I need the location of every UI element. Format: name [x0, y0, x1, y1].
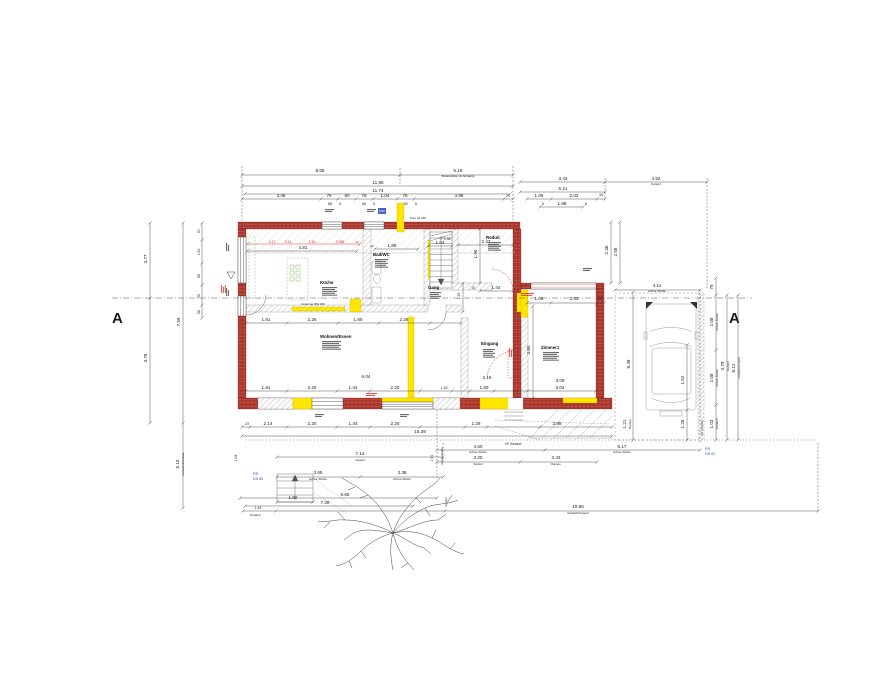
micro-text-line [221, 285, 222, 293]
dim-label: 6 [585, 202, 587, 206]
micro-text-line [228, 290, 229, 296]
dim-label: 7.59 [176, 317, 181, 326]
dim-label: Carport [726, 361, 730, 371]
ramp-hatch [528, 410, 612, 438]
micro-text-block [322, 287, 337, 296]
dim-label: 3.98 [455, 193, 464, 198]
dim-label: 15.39 [414, 429, 426, 434]
room-label-eingang: Eingang [481, 341, 499, 346]
dim-label: Sockel [473, 462, 482, 466]
dim-label: 2.03 [570, 193, 579, 198]
micro-text-block [322, 341, 341, 350]
micro-text-line [322, 287, 337, 288]
micro-text-line [430, 298, 439, 299]
dim-label: Achse Stütze [309, 477, 327, 481]
micro-text-line [483, 357, 495, 358]
micro-text-line [228, 245, 229, 251]
dim-label: 1.44 [492, 285, 501, 290]
dim-label: Vordach/Carport [737, 357, 741, 379]
dim-label: 1.62 [197, 249, 201, 256]
dim-label: 2.26 [400, 317, 409, 322]
dim-label: 3.65 [526, 345, 531, 354]
room-label-reduit: Reduit [486, 235, 500, 240]
micro-text-line [226, 288, 227, 296]
dim-label: 58 [197, 274, 201, 278]
micro-text-line [488, 246, 501, 247]
micro-text-line [543, 356, 559, 357]
dim-label: 3.89 [553, 421, 562, 426]
dim-label: 1.80 [354, 317, 363, 322]
micro-text-line [543, 354, 557, 355]
micro-text-line [400, 416, 407, 417]
dim-label: 1.40 [309, 240, 316, 244]
micro-text-line [325, 209, 334, 210]
drain-left-label-1: RR [253, 472, 259, 476]
dim-label: Knie eff.160 [410, 216, 426, 220]
dim-label: 92 [404, 202, 408, 206]
dim-label: 1.44 [349, 421, 358, 426]
micro-text-line [521, 293, 534, 294]
dim-label: 4.52 [652, 176, 661, 181]
micro-text-line [315, 414, 324, 415]
labels-layer: 8.655.19Bodenplatte vor Eingang11.9611.7… [143, 168, 741, 517]
dim-label: 6 [542, 202, 544, 206]
dim-label: 76 [326, 193, 332, 198]
micro-text-line [488, 242, 501, 243]
micro-text-line [483, 353, 495, 354]
micro-text-line [488, 244, 499, 245]
dim-label: 2.14 [285, 240, 292, 244]
dim-label: 3.43 [552, 455, 561, 460]
micro-text-line [483, 355, 493, 356]
micro-text-line [521, 295, 532, 296]
hob-icon [290, 265, 300, 281]
micro-text-line [430, 294, 439, 295]
dim-label: 1.81 [262, 317, 271, 322]
bottom-wall-hatch-1 [258, 398, 293, 409]
drain-right-label-2: DN 60 [705, 452, 715, 456]
dim-label: 2.20 [391, 421, 400, 426]
car-icon [644, 304, 698, 416]
dim-label: 1.03 [709, 419, 714, 428]
dim-label: 2.20 [308, 385, 317, 390]
micro-text-block [583, 268, 592, 271]
micro-text-block [325, 209, 334, 212]
micro-text-line [375, 265, 386, 266]
blue-marker-icon [378, 208, 386, 214]
dim-label: Achse Stütze [715, 369, 719, 387]
micro-text-line [375, 263, 388, 264]
dim-label: Bodenplatte vor Eingang [442, 174, 475, 178]
micro-text-line [322, 289, 335, 290]
micro-text-line [509, 348, 510, 357]
dim-label: 1.26 [680, 419, 685, 428]
micro-text-line [322, 343, 339, 344]
dim-label: 1.18 [441, 386, 448, 390]
dim-label: 5.21 [559, 186, 568, 191]
dim-label: 95 [197, 294, 201, 298]
micro-text-line [367, 211, 374, 212]
micro-text-line [543, 360, 559, 361]
micro-text-line [325, 211, 332, 212]
dim-label: 8.12 [731, 363, 736, 372]
dim-label: Vordach/Carport [567, 511, 589, 515]
micro-text-block [226, 288, 229, 296]
dim-label: 1.06 [535, 193, 544, 198]
room-label-wohnen-essen: Wohnen/Essen [320, 334, 352, 339]
dim-label: Unterzug IPE 200 [301, 302, 325, 306]
micro-text-line [583, 268, 592, 269]
dim-label: 2.14 [264, 421, 273, 426]
drain-left-label-2: DN 80 [253, 477, 263, 481]
dim-label: 1.91 [430, 455, 434, 462]
micro-text-line [366, 393, 377, 394]
micro-text-line [400, 414, 409, 415]
dim-label: 2.58 [613, 247, 618, 256]
dim-label: Achse Stütze [613, 450, 631, 454]
dim-label: 3.09 [556, 378, 565, 383]
micro-text-line [483, 351, 493, 352]
dim-label: VK Vordach [505, 442, 522, 446]
dim-label: 68 [328, 202, 332, 206]
dim-label: Vordach [249, 513, 260, 517]
dim-label: 3.38 [398, 470, 407, 475]
floor-plan-canvas: A A RR DN 80 RR DN 60 8.655.19Bodenplatt… [0, 0, 896, 680]
dim-label: 8.65 [316, 168, 325, 173]
dim-label: 4.79 [720, 361, 725, 370]
dim-label: 2.08 [709, 317, 714, 326]
dim-label: Achse Stütze [469, 450, 487, 454]
dim-label: 2.055 [336, 240, 345, 244]
drain-right-label-1: RR [705, 447, 711, 451]
micro-text-block [366, 393, 377, 396]
dim-label: 80 [344, 193, 350, 198]
dim-label: 1.44 [349, 385, 358, 390]
micro-text-line [367, 209, 376, 210]
micro-text-line [583, 270, 590, 271]
dim-label: Sockel [355, 458, 364, 462]
floor-plan-drawing: A A RR DN 80 RR DN 60 8.655.19Bodenplatt… [0, 0, 896, 680]
dim-label: 76 [361, 193, 367, 198]
door-arc-living [428, 312, 446, 330]
dim-label: 66 [362, 202, 366, 206]
micro-text-block [400, 414, 409, 417]
micro-text-line [322, 293, 335, 294]
dim-label: 1.88 [558, 201, 567, 206]
dim-label: 10.86 [572, 504, 584, 509]
dim-label: 2.20 [308, 421, 317, 426]
dim-label: 12 [355, 240, 359, 244]
dim-label: 1.04 [381, 193, 390, 198]
section-marker-left: A [112, 310, 123, 327]
dim-label: 6.17 [618, 444, 627, 449]
micro-text-line [375, 267, 388, 268]
dim-label: 2.03 [570, 296, 579, 301]
micro-text-line [488, 248, 499, 249]
micro-text-line [315, 416, 322, 417]
dim-label: 7.14 [356, 451, 365, 456]
dim-label: 1.88 [388, 243, 397, 248]
dim-label: 1.44 [255, 506, 262, 510]
micro-text-block [509, 348, 512, 357]
dim-label: Achse Stütze [440, 447, 444, 465]
dim-label: 3.78 [143, 353, 148, 362]
dim-label: 4.11 [653, 283, 662, 288]
dim-label: Achse Stütze [648, 289, 666, 293]
dim-label: Achse Stütze [715, 313, 719, 331]
micro-text-block [221, 285, 226, 293]
micro-text-line [225, 285, 226, 293]
room-label-gang: Gang [428, 285, 440, 290]
dim-label: 15 [471, 286, 475, 290]
dim-label: 5.19 [454, 168, 463, 173]
dim-label: 1.29 [457, 293, 461, 300]
carport-edge-strip [698, 293, 704, 440]
dim-label: 3.48 [277, 193, 286, 198]
dim-label: Rampe [551, 462, 561, 466]
micro-text-line [543, 358, 557, 359]
dim-label: 1.29 [472, 421, 481, 426]
dim-label: 2.19 [483, 375, 492, 380]
dim-label: 2.08 [709, 373, 714, 382]
dim-label: Sockel [444, 497, 448, 506]
dim-label: 8.66 [341, 492, 350, 497]
dim-label: 1.04 [234, 455, 238, 462]
post-marker-left [646, 302, 653, 309]
room-label-zimmer1: Zimmer1 [541, 345, 560, 350]
dim-label: 3.77 [143, 254, 148, 263]
dim-label: 34 [598, 296, 602, 300]
micro-text-line [543, 352, 559, 353]
micro-text-line [223, 287, 224, 293]
dim-label: 58 [197, 310, 201, 314]
micro-text-line [322, 349, 341, 350]
dim-label: 3.04 [556, 385, 565, 390]
dim-label: 3.17 [269, 240, 276, 244]
dim-label: 1.50 [480, 385, 489, 390]
dim-label: 34 [599, 193, 603, 197]
micro-text-block [315, 414, 324, 417]
dim-label: Carport [651, 182, 661, 186]
dim-label: 76 [402, 193, 408, 198]
dim-label: 6.04 [362, 374, 371, 379]
bottom-wall-hatch-2 [433, 398, 460, 409]
room-label-k-che: Küche [320, 280, 334, 285]
micro-text-line [375, 261, 386, 262]
dim-label: 2.26 [308, 317, 317, 322]
micro-text-line [375, 259, 388, 260]
dim-label: 22 [506, 194, 510, 198]
section-marker-right: A [729, 310, 740, 327]
dim-label: 1.80 [289, 495, 298, 500]
dim-label: Rampe [628, 419, 632, 429]
micro-text-line [322, 295, 337, 296]
window-left-1 [238, 237, 246, 283]
micro-text-line [322, 347, 339, 348]
micro-text-line [483, 349, 495, 350]
micro-text-line [366, 395, 375, 396]
dim-label: Vordach/Postkast. [181, 452, 185, 476]
post-marker-right [690, 302, 697, 309]
window-left-2 [238, 296, 246, 316]
micro-text-block [483, 349, 495, 358]
dim-label: 2.38 [444, 237, 451, 241]
dim-label: 1.52 [680, 375, 685, 384]
dim-label: 3.65 [314, 470, 323, 475]
dim-label: 7.39 [321, 500, 330, 505]
window-bottom-2 [382, 402, 433, 409]
dim-label: 1.90 [473, 249, 478, 258]
micro-text-line [511, 350, 512, 357]
dim-label: 5 [373, 202, 375, 206]
triangle-marker-icon [227, 272, 235, 279]
dim-label: Vordach [715, 418, 719, 429]
dim-label: 11.96 [372, 180, 384, 185]
micro-text-line [322, 291, 337, 292]
dim-label: 23 [245, 422, 249, 426]
window-bottom-1 [312, 398, 343, 409]
window-top-2 [364, 222, 384, 229]
dim-label: 1.06 [535, 296, 544, 301]
dim-label: 3.20 [474, 455, 483, 460]
micro-text-block [367, 209, 376, 212]
micro-text-block [543, 352, 559, 361]
dim-label: 12 [370, 244, 374, 248]
dim-label: VK Vordach [700, 420, 704, 436]
micro-text-line [226, 243, 227, 251]
micro-text-line [322, 341, 341, 342]
micro-text-line [322, 345, 341, 346]
dim-label: 5.10 [175, 459, 180, 468]
dim-label: 5 [339, 202, 341, 206]
window-top-1 [322, 222, 342, 229]
dim-label: 6 [415, 202, 417, 206]
dim-label: 76 [709, 284, 714, 290]
micro-text-line [430, 296, 441, 297]
micro-text-line [430, 292, 441, 293]
dim-label: 1.21 [622, 419, 627, 428]
dim-label: 8.48 [626, 359, 631, 368]
micro-text-line [488, 250, 501, 251]
room-label-bad-wc: Bad/WC [373, 252, 391, 257]
micro-text-block [226, 243, 229, 251]
dim-label: 1.81 [262, 385, 271, 390]
dim-label: 2.36 [604, 245, 609, 254]
dim-label: 4.50 [474, 444, 483, 449]
window-wing-top [531, 283, 596, 289]
dim-label: Achse Stütze [393, 477, 411, 481]
dim-label: 2.20 [391, 385, 400, 390]
dim-label: 4.81 [299, 245, 308, 250]
dim-label: 61 [197, 229, 201, 233]
dim-label: 3.43 [559, 176, 568, 181]
